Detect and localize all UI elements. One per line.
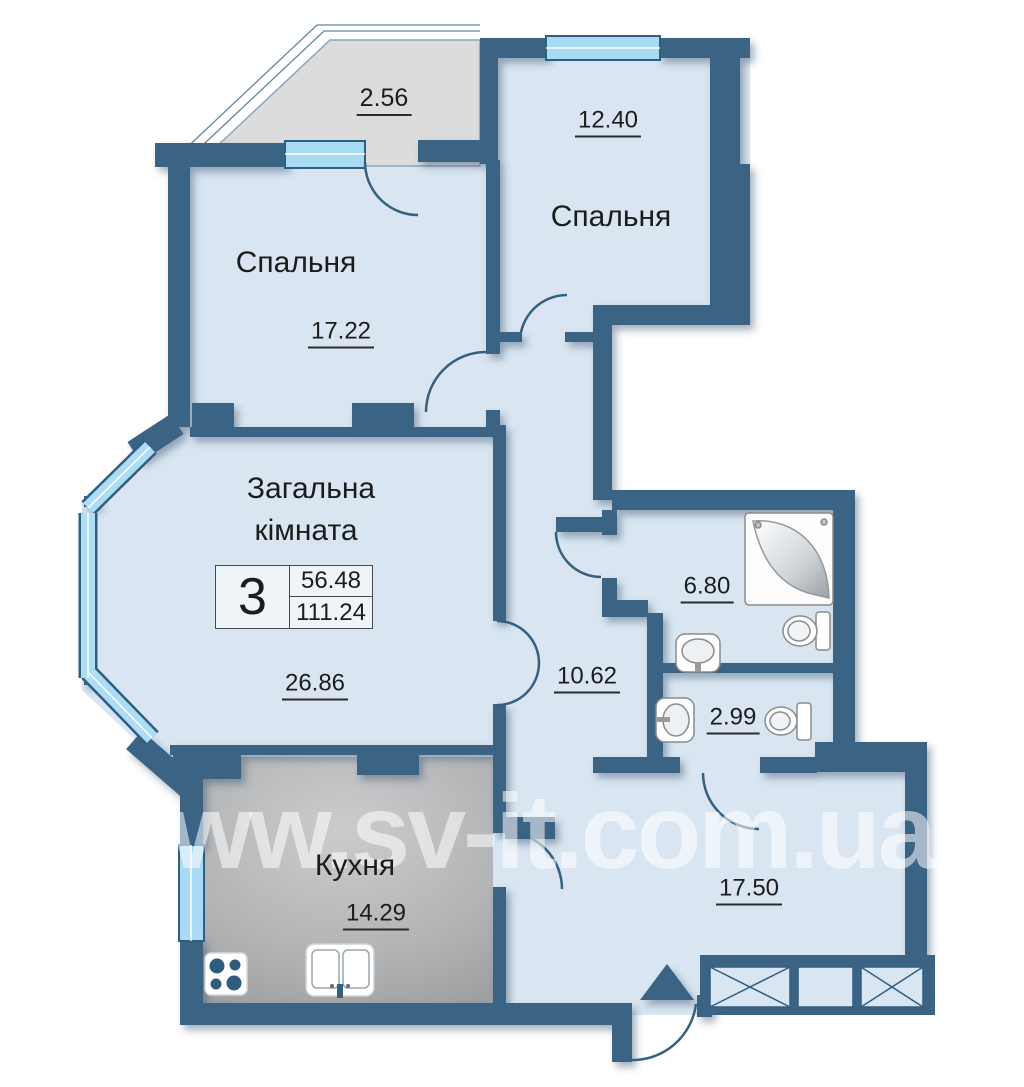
stove-icon [205,953,247,995]
living-room-name-line1: Загальна [247,472,375,506]
bedroom-left-name-label: Спальня [236,246,357,280]
total-area-value: 111.24 [290,597,372,628]
living-area-value: 56.48 [290,566,372,597]
kitchen-area-label: 14.29 [343,900,409,931]
floor-plan-drawing [0,0,1024,1087]
bedroom-right-name-label: Спальня [551,200,672,234]
kitchen-name-label: Кухня [315,849,395,883]
rooms-count: 3 [216,566,290,628]
corridor-area-label: 10.62 [554,663,620,694]
bedroom-left-window [285,141,365,168]
living-room-name-line2: кімната [254,514,357,548]
floor-plan-page: www.sv-it.com.ua 2.56 Спальня 17.22 12.4… [0,0,1024,1087]
bedroom-right-area-label: 12.40 [575,107,641,138]
watermark: www.sv-it.com.ua [90,772,933,893]
bathroom-sink-icon [676,634,720,672]
balcony-area-label: 2.56 [357,84,412,116]
bathroom-area-label: 6.80 [681,573,734,604]
kitchen-sink-icon [306,944,374,998]
apartment-info-box: 3 56.48 111.24 [215,565,373,629]
bedroom-left-area-label: 17.22 [308,318,374,349]
wardrobe-icon [700,955,935,1015]
bedroom-right-window [546,36,660,60]
wc-sink-icon [656,698,694,742]
wc-area-label: 2.99 [707,704,760,735]
hallway-area-label: 17.50 [716,875,782,906]
living-room-area-label: 26.86 [282,670,348,701]
bathtub-icon [745,513,833,605]
